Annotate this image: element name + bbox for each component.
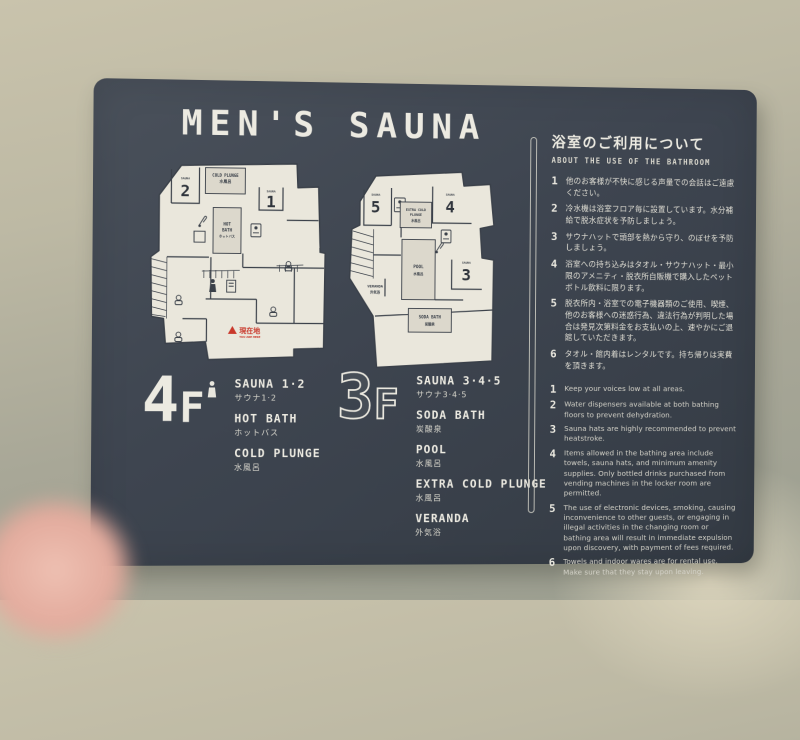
- 3f-sauna-room-5: SAUNA 5: [371, 193, 381, 217]
- 3f-pool: POOL 水風呂: [402, 239, 436, 299]
- rule-text: Water dispensers available at both bathi…: [564, 400, 737, 421]
- rule-text: 他のお客様が不快に感じる声量での会話はご遠慮ください。: [566, 176, 739, 201]
- floor-map-4f: SAUNA 2 COLD PLUNGE 水風呂 SAUNA 1 HOT: [146, 159, 329, 365]
- rule-text: Items allowed in the bathing area includ…: [564, 448, 738, 499]
- 3f-veranda-jp: 外気浴: [370, 289, 381, 294]
- rule-number: 4: [549, 448, 564, 499]
- 4f-cold-plunge-jp: 水風呂: [218, 179, 231, 184]
- rule-text: 浴室への持ち込みはタオル・サウナハット・最小限のアメニティ・脱衣所自販機で購入し…: [565, 259, 739, 295]
- legend-item: VERANDA 外気浴: [415, 511, 546, 538]
- 3f-room3-caption: SAUNA: [462, 261, 471, 265]
- 3f-ecp-en2: PLUNGE: [410, 213, 422, 217]
- rule-text: サウナハットで頭部を熱から守り、のぼせを予防しましょう。: [565, 231, 738, 256]
- 3f-room5-caption: SAUNA: [371, 193, 380, 197]
- rule-row: 2 冷水機は浴室フロア毎に設置しています。水分補給で脱水症状を予防しましょう。: [551, 203, 739, 228]
- legend-en: VERANDA: [415, 511, 546, 525]
- 3f-extra-cold-plunge: EXTRA COLD PLUNGE 水風呂: [400, 202, 432, 228]
- legend-item: SAUNA 1·2 サウナ1·2: [234, 377, 321, 404]
- panel-title-jp: 浴室のご利用について: [552, 131, 740, 154]
- rules-english: 1 Keep your voices low at all areas. 2 W…: [549, 384, 738, 578]
- 3f-room4-number: 4: [445, 198, 455, 217]
- 3f-sauna-room-3: SAUNA 3: [462, 261, 472, 285]
- 4f-hot-bath-jp: ホットバス: [219, 233, 235, 238]
- legend-jp: ホットバス: [234, 427, 321, 438]
- rule-number: 1: [551, 175, 566, 198]
- floor-suffix: F: [374, 387, 399, 422]
- photo-scene: MEN'S SAUNA SAUNA 2: [92, 78, 770, 566]
- rule-row: 4 浴室への持ち込みはタオル・サウナハット・最小限のアメニティ・脱衣所自販機で購…: [551, 259, 739, 295]
- rule-row: 1 Keep your voices low at all areas.: [550, 384, 738, 396]
- bathroom-rules-panel: 浴室のご利用について ABOUT THE USE OF THE BATHROOM…: [549, 131, 740, 577]
- rule-number: 6: [550, 349, 565, 372]
- 3f-room3-number: 3: [462, 266, 472, 285]
- floor-map-4f-svg: SAUNA 2 COLD PLUNGE 水風呂 SAUNA 1 HOT: [146, 159, 329, 365]
- rule-number: 4: [551, 259, 566, 293]
- 4f-sauna-room-1: SAUNA 1: [266, 189, 276, 211]
- panel-title-en: ABOUT THE USE OF THE BATHROOM: [552, 156, 740, 168]
- rule-text: Towels and indoor wares are for rental u…: [563, 557, 736, 578]
- legend-3f: 3F SAUNA 3·4·5 サウナ3·4·5 SODA BATH 炭酸泉 PO…: [336, 371, 547, 538]
- 3f-room4-caption: SAUNA: [446, 193, 455, 197]
- rule-text: 冷水機は浴室フロア毎に設置しています。水分補給で脱水症状を予防しましょう。: [566, 203, 739, 228]
- sauna-sign-board: MEN'S SAUNA SAUNA 2: [90, 78, 757, 566]
- 4f-hot-bath: HOT BATH ホットバス: [213, 207, 241, 253]
- rule-row: 1 他のお客様が不快に感じる声量での会話はご遠慮ください。: [551, 175, 739, 200]
- 3f-room5-number: 5: [371, 198, 381, 217]
- 3f-veranda-en: VERANDA: [367, 283, 383, 288]
- rule-row: 4 Items allowed in the bathing area incl…: [549, 448, 737, 499]
- sign-title: MEN'S SAUNA: [152, 103, 515, 148]
- 3f-ecp-en1: EXTRA COLD: [406, 208, 426, 212]
- 3f-soda-bath-en: SODA BATH: [419, 314, 442, 319]
- rule-row: 5 The use of electronic devices, smoking…: [549, 503, 737, 554]
- rule-number: 6: [549, 557, 564, 577]
- rule-number: 5: [549, 503, 564, 554]
- floor-suffix: F: [179, 390, 205, 426]
- 4f-hot-bath-en2: BATH: [222, 227, 233, 232]
- 3f-pool-jp: 水風呂: [412, 271, 424, 276]
- floor-digit: 4: [142, 374, 180, 427]
- rule-row: 6 Towels and indoor wares are for rental…: [549, 557, 737, 578]
- legend-jp: 水風呂: [234, 462, 321, 473]
- legend-en: HOT BATH: [234, 411, 321, 425]
- rule-row: 2 Water dispensers available at both bat…: [550, 400, 738, 421]
- current-location-jp: 現在地: [239, 326, 260, 335]
- rule-text: The use of electronic devices, smoking, …: [563, 503, 737, 554]
- floor-map-3f-svg: SAUNA 5 SAUNA 4 EXTRA COLD PLUNGE: [345, 168, 499, 374]
- rule-number: 1: [550, 384, 565, 396]
- rule-row: 5 脱衣所内・浴室での電子機器類のご使用、喫煙、他のお客様への迷惑行為、違法行為…: [550, 298, 738, 345]
- rule-text: Sauna hats are highly recommended to pre…: [564, 424, 737, 444]
- 4f-cold-plunge-en: COLD PLUNGE: [212, 173, 239, 178]
- rule-row: 3 サウナハットで頭部を熱から守り、のぼせを予防しましょう。: [551, 231, 739, 256]
- legend-items-4f: SAUNA 1·2 サウナ1·2 HOT BATH ホットバス COLD PLU…: [234, 375, 321, 473]
- legend-jp: サウナ1·2: [234, 393, 321, 404]
- floor-digit: 3: [337, 371, 374, 423]
- 3f-ecp-jp: 水風呂: [410, 218, 420, 223]
- person-icon: [207, 380, 217, 398]
- rule-number: 2: [550, 400, 565, 420]
- 4f-cold-plunge: COLD PLUNGE 水風呂: [205, 168, 245, 194]
- floor-number-3f: 3F: [337, 371, 399, 423]
- 3f-pool-en: POOL: [413, 264, 424, 270]
- legend-item: HOT BATH ホットバス: [234, 411, 321, 438]
- floor-map-3f: SAUNA 5 SAUNA 4 EXTRA COLD PLUNGE: [345, 168, 499, 374]
- rule-text: Keep your voices low at all areas.: [564, 384, 685, 396]
- current-location-en: YOU ARE HERE: [238, 335, 260, 339]
- legend-item: COLD PLUNGE 水風呂: [234, 446, 321, 473]
- 3f-soda-bath-jp: 炭酸泉: [424, 321, 436, 326]
- rule-row: 3 Sauna hats are highly recommended to p…: [550, 424, 738, 445]
- rule-number: 5: [550, 298, 565, 344]
- 3f-soda-bath: SODA BATH 炭酸泉: [408, 308, 451, 332]
- legend-en: SAUNA 1·2: [235, 377, 322, 391]
- 3f-sauna-room-4: SAUNA 4: [445, 193, 455, 217]
- 4f-hot-bath-en1: HOT: [223, 222, 231, 227]
- rule-text: タオル・館内着はレンタルです。持ち帰りは実費を頂きます。: [565, 349, 738, 373]
- rule-number: 2: [551, 203, 566, 226]
- rule-text: 脱衣所内・浴室での電子機器類のご使用、喫煙、他のお客様への迷惑行為、違法行為が判…: [565, 298, 739, 345]
- rule-number: 3: [550, 424, 565, 444]
- rule-number: 3: [551, 231, 566, 254]
- 4f-sauna-room-2: SAUNA 2: [181, 176, 191, 200]
- 4f-room2-caption: SAUNA: [181, 176, 190, 180]
- legend-4f: 4F SAUNA 1·2 サウナ1·2 HOT BATH ホットバス COLD …: [141, 374, 321, 473]
- legend-en: COLD PLUNGE: [234, 446, 321, 460]
- 4f-room2-number: 2: [181, 181, 191, 200]
- 4f-room1-number: 1: [266, 192, 276, 211]
- rules-japanese: 1 他のお客様が不快に感じる声量での会話はご遠慮ください。 2 冷水機は浴室フロ…: [550, 175, 739, 372]
- floor-number-4f: 4F: [142, 374, 217, 427]
- legend-jp: 外気浴: [415, 527, 546, 538]
- rule-row: 6 タオル・館内着はレンタルです。持ち帰りは実費を頂きます。: [550, 349, 738, 373]
